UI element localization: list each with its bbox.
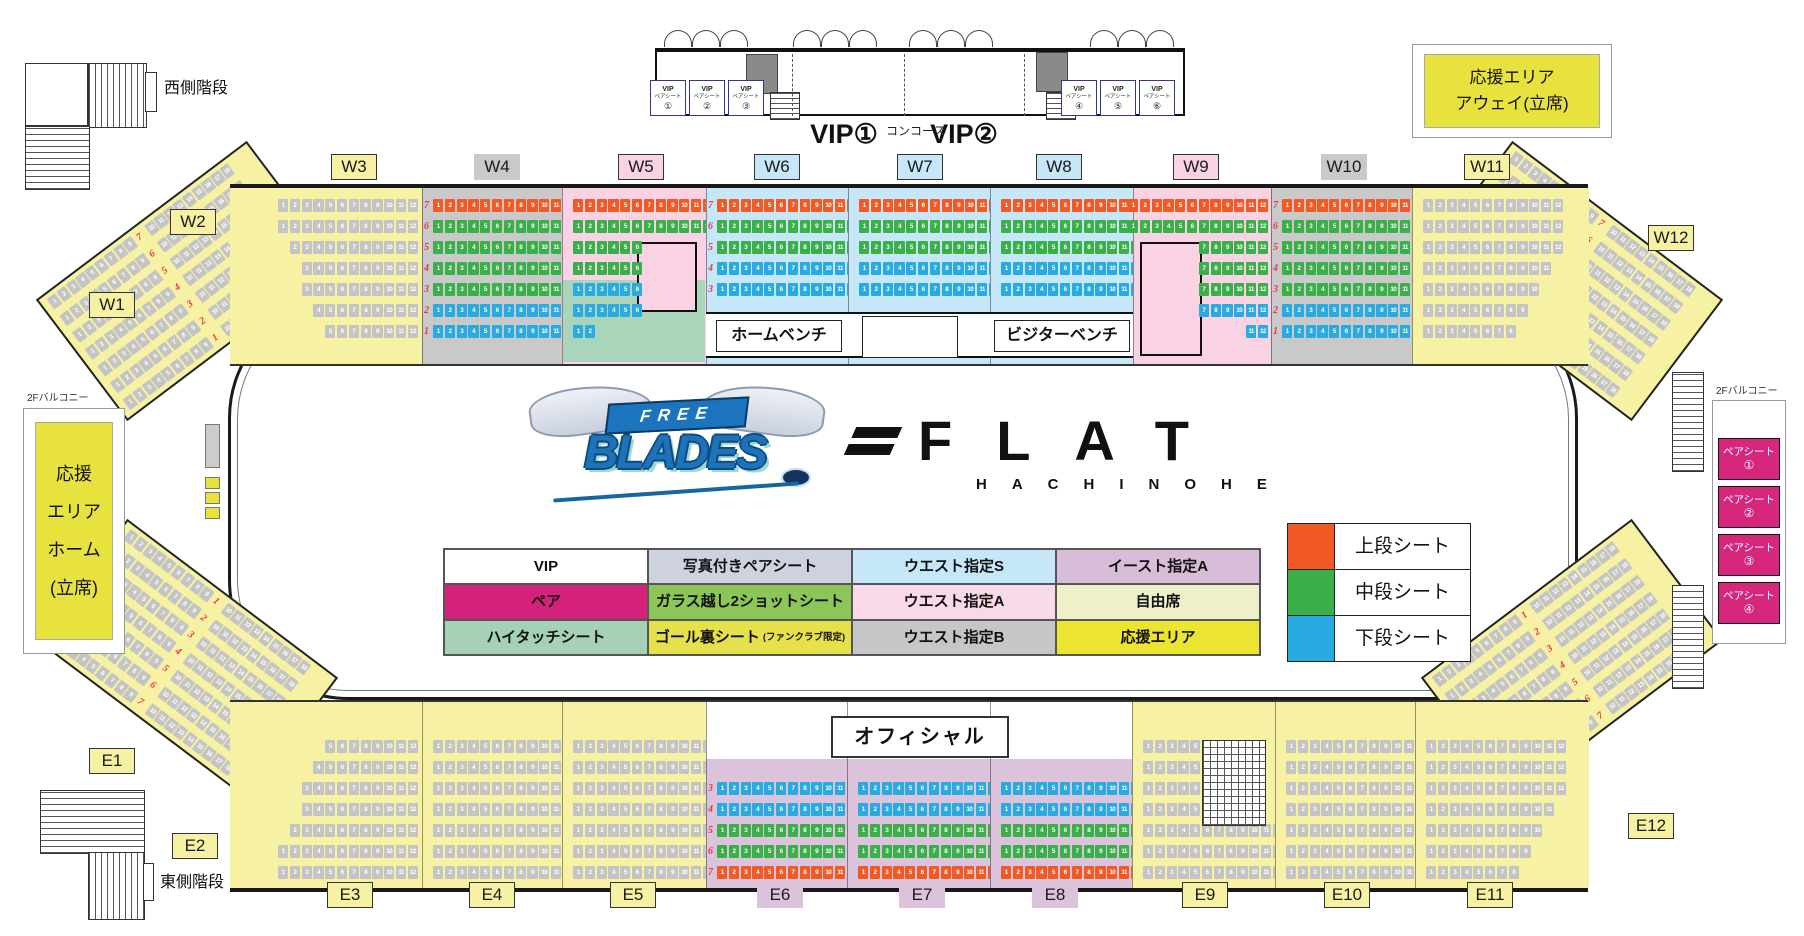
legend-cell-label: ハイタッチシート (486, 629, 605, 646)
seat: 11 (691, 220, 701, 233)
seat: 8 (360, 220, 370, 233)
vip-pair-seat-3: VIPペアシート③ (728, 80, 764, 116)
seat: 8 (516, 283, 526, 296)
seat: 3 (1306, 220, 1316, 233)
seat: 11 (551, 262, 561, 275)
seat: 11 (1246, 283, 1256, 296)
seat: 5 (1333, 782, 1343, 795)
seat: 3 (883, 283, 893, 296)
seat: 9 (1517, 262, 1527, 275)
seat: 9 (1376, 241, 1386, 254)
door-arch-icon (720, 30, 748, 47)
seat: 4 (1317, 325, 1327, 338)
seat: 1 (1001, 283, 1011, 296)
seat: 5 (764, 220, 774, 233)
tier-row-2: 中段シート (1288, 569, 1470, 615)
seat: 6 (1485, 740, 1495, 753)
tier-swatch-1 (1288, 524, 1335, 569)
seat: 4 (1321, 803, 1331, 816)
seat: 8 (1509, 803, 1519, 816)
seat: 8 (1084, 262, 1094, 275)
seat: 4 (468, 241, 478, 254)
seat: 11 (1119, 241, 1129, 254)
seat: 9 (372, 241, 382, 254)
seat: 2 (1438, 803, 1448, 816)
seat-row: 123456789101112 (1426, 740, 1566, 753)
section-label-W4: W4 (474, 154, 520, 180)
seat: 11 (396, 803, 406, 816)
seat-row: 123456789101112 (573, 740, 713, 753)
seat: 10 (1107, 241, 1117, 254)
seat: 2 (445, 824, 455, 837)
seat: 8 (1506, 283, 1516, 296)
seat: 9 (1376, 262, 1386, 275)
seat: 6 (492, 262, 502, 275)
seat: 6 (1485, 824, 1495, 837)
seat: 3 (1025, 845, 1035, 858)
seat: 7 (1357, 866, 1367, 879)
vip-pair-seat-4: VIPペアシート④ (1061, 80, 1097, 116)
seat: 11 (1400, 199, 1410, 212)
seat: 9 (527, 283, 537, 296)
seat: 10 (1107, 866, 1117, 879)
seat: 4 (1461, 740, 1471, 753)
seat: 3 (1167, 782, 1177, 795)
seat: 9 (1095, 782, 1105, 795)
seat: 8 (516, 199, 526, 212)
seat: 4 (1036, 803, 1046, 816)
seat: 9 (372, 866, 382, 879)
seat: 11 (976, 782, 986, 795)
balcony-right-label: 2Fバルコニー (1716, 386, 1777, 398)
seat: 5 (1329, 283, 1339, 296)
seat: 5 (325, 283, 335, 296)
seat-type-legend: VIP写真付きペアシートウエスト指定Sイースト指定Aペアガラス越し2ショットシー… (443, 548, 1261, 656)
seat: 10 (1234, 304, 1244, 317)
seat: 10 (823, 199, 833, 212)
seat-row: 123456789101112 (717, 803, 857, 816)
seat: 5 (1048, 283, 1058, 296)
seat-row: 123456789101112 (858, 845, 998, 858)
seat: 4 (608, 782, 618, 795)
seat: 4 (752, 241, 762, 254)
door-arch-icon (965, 30, 993, 47)
vip-pair-line1: VIP (1112, 86, 1123, 93)
seat: 5 (905, 782, 915, 795)
seat: 9 (667, 824, 677, 837)
section-label-W8: W8 (1036, 154, 1082, 180)
seat: 10 (539, 241, 549, 254)
seat: 3 (741, 824, 751, 837)
seat: 8 (516, 824, 526, 837)
seat: 3 (457, 782, 467, 795)
seat: 10 (679, 199, 689, 212)
seat: 6 (1060, 866, 1070, 879)
seat: 1 (1143, 866, 1153, 879)
seat: 1 (433, 325, 443, 338)
seat: 3 (302, 803, 312, 816)
seat: 11 (1400, 220, 1410, 233)
seat: 4 (1317, 304, 1327, 317)
seat: 2 (1013, 845, 1023, 858)
seat: 9 (372, 782, 382, 795)
seat: 5 (1048, 199, 1058, 212)
seat: 3 (1167, 845, 1177, 858)
seat: 9 (1095, 803, 1105, 816)
seat: 10 (1392, 824, 1402, 837)
seat: 3 (1447, 241, 1457, 254)
section-label-E10: E10 (1324, 882, 1370, 908)
seat: 4 (1461, 782, 1471, 795)
seat: 4 (313, 283, 323, 296)
seat: 2 (585, 199, 595, 212)
seat-row: 123456789101112 (433, 199, 573, 212)
seat: 2 (729, 262, 739, 275)
section-label-E6: E6 (757, 882, 803, 908)
seat: 8 (656, 845, 666, 858)
seat: 6 (776, 866, 786, 879)
seat: 3 (1450, 803, 1460, 816)
seat: 10 (1532, 740, 1542, 753)
seat: 6 (1485, 782, 1495, 795)
seat: 11 (1400, 241, 1410, 254)
seat: 6 (776, 220, 786, 233)
seat: 5 (1329, 241, 1339, 254)
seat: 4 (468, 283, 478, 296)
seat: 5 (1470, 262, 1480, 275)
seat-row: 123456789101112 (278, 866, 418, 879)
seat: 3 (597, 761, 607, 774)
seat: 11 (1119, 283, 1129, 296)
seat: 10 (1388, 241, 1398, 254)
seat: 6 (1345, 845, 1355, 858)
seat: 7 (788, 199, 798, 212)
seat: 4 (1178, 740, 1188, 753)
seat: 11 (835, 283, 845, 296)
seat: 7 (1494, 199, 1504, 212)
seat: 1 (278, 199, 288, 212)
seat: 1 (573, 866, 583, 879)
seat: 10 (1234, 262, 1244, 275)
pair-seat-label: ペアシート (1723, 446, 1775, 458)
seat: 8 (1509, 761, 1519, 774)
seat: 12 (408, 325, 418, 338)
seat: 11 (691, 824, 701, 837)
seat: 3 (1450, 782, 1460, 795)
seat: 4 (313, 304, 323, 317)
seat: 3 (741, 220, 751, 233)
seat: 5 (1473, 803, 1483, 816)
seat: 8 (1365, 304, 1375, 317)
seat: 4 (1458, 283, 1468, 296)
door-arch-icon (1146, 30, 1174, 47)
seat: 4 (608, 740, 618, 753)
vip-pair-line2: ペアシート (1105, 93, 1132, 100)
seat: 11 (396, 241, 406, 254)
section-E5: 1234567891011121234567891011121234567891… (562, 702, 707, 888)
seat: 4 (1317, 283, 1327, 296)
seat: 1 (1282, 262, 1292, 275)
seat: 7 (1353, 325, 1363, 338)
flat-hachinohe-logo: FLAT HACHINOHE (850, 412, 1310, 494)
seat: 2 (1438, 782, 1448, 795)
seat: 4 (1178, 761, 1188, 774)
row-number: 5 (1273, 241, 1278, 254)
seat: 11 (551, 304, 561, 317)
seat: 5 (620, 740, 630, 753)
seat: 9 (952, 803, 962, 816)
row-number: 1 (1273, 325, 1278, 338)
seat: 5 (325, 803, 335, 816)
seat: 2 (1298, 761, 1308, 774)
seat: 4 (313, 199, 323, 212)
seat: 10 (1388, 325, 1398, 338)
seat: 8 (1210, 199, 1220, 212)
seat: 4 (1458, 241, 1468, 254)
seat: 11 (1544, 803, 1554, 816)
seat: 3 (1306, 241, 1316, 254)
seat: 10 (1234, 241, 1244, 254)
seat: 7 (788, 866, 798, 879)
seat: 10 (1249, 845, 1259, 858)
seat: 8 (1506, 262, 1516, 275)
seat: 1 (858, 824, 868, 837)
seat: 9 (1380, 845, 1390, 858)
seat: 7 (644, 199, 654, 212)
seat: 9 (953, 199, 963, 212)
seat: 10 (1234, 283, 1244, 296)
seat: 11 (551, 824, 561, 837)
seat-row: 123456789101112 (717, 262, 857, 275)
seat-row: 123456789101112 (1282, 304, 1422, 317)
seat: 11 (1400, 304, 1410, 317)
seat: 3 (1025, 262, 1035, 275)
seat: 2 (1435, 283, 1445, 296)
seat: 5 (1190, 803, 1200, 816)
tier-label-1: 上段シート (1335, 524, 1470, 569)
legend-cell-label: 応援エリア (1120, 629, 1195, 646)
section-W5: 1234567891011121234567891011121234561234… (562, 188, 707, 364)
swoosh-icon (553, 481, 799, 502)
seat: 6 (1060, 283, 1070, 296)
seat: 6 (632, 845, 642, 858)
seat-row: 1234567891011 (1426, 803, 1554, 816)
seat-row: 3456789101112 (302, 283, 419, 296)
seat: 8 (942, 220, 952, 233)
seat: 4 (1163, 199, 1173, 212)
seat: 11 (977, 262, 987, 275)
seat: 1 (859, 220, 869, 233)
seat: 8 (800, 262, 810, 275)
section-E6: 1234567891011123123456789101112412345678… (706, 702, 848, 888)
seat: 10 (679, 220, 689, 233)
seat: 2 (585, 740, 595, 753)
pair-seat-3: ペアシート③ (1718, 534, 1780, 576)
pair-seat-num: ② (1744, 506, 1755, 520)
seat: 3 (457, 262, 467, 275)
seat: 6 (492, 740, 502, 753)
seat: 9 (372, 283, 382, 296)
tier-label-2: 中段シート (1335, 570, 1470, 615)
seat: 11 (1119, 782, 1129, 795)
seat: 2 (1013, 241, 1023, 254)
seat: 10 (964, 782, 974, 795)
seat: 6 (1482, 325, 1492, 338)
seat: 2 (585, 782, 595, 795)
seat: 5 (620, 845, 630, 858)
legend-cell-r3c3: ウエスト指定B (852, 620, 1056, 655)
seat: 3 (882, 803, 892, 816)
seat: 1 (1001, 866, 1011, 879)
seat-row: 123456789101112 (1282, 283, 1422, 296)
seat: 7 (644, 220, 654, 233)
seat: 7 (504, 325, 514, 338)
seat: 9 (667, 803, 677, 816)
legend-cell-label: ウエスト指定A (904, 593, 1005, 610)
seat: 8 (656, 199, 666, 212)
seat: 9 (1380, 824, 1390, 837)
seat: 3 (1167, 803, 1177, 816)
seat: 5 (764, 199, 774, 212)
seat: 6 (1482, 220, 1492, 233)
seat: 6 (1345, 740, 1355, 753)
seat-row: 123456789101112 (859, 199, 999, 212)
section-label-E7: E7 (899, 882, 945, 908)
seat: 5 (1175, 220, 1185, 233)
pair-seat-label: ペアシート (1723, 590, 1775, 602)
seat: 5 (1329, 325, 1339, 338)
seat: 6 (1345, 866, 1355, 879)
seat: 2 (1294, 283, 1304, 296)
seat: 4 (608, 845, 618, 858)
seat: 4 (468, 845, 478, 858)
seat: 11 (551, 845, 561, 858)
seat: 4 (1458, 220, 1468, 233)
seat: 2 (1155, 824, 1165, 837)
vip-pair-line1: VIP (1073, 86, 1084, 93)
vip-pair-line2: ペアシート (733, 93, 760, 100)
seat: 10 (384, 761, 394, 774)
seat: 2 (1013, 283, 1023, 296)
seat: 8 (800, 803, 810, 816)
seat: 3 (457, 740, 467, 753)
seat: 2 (1013, 824, 1023, 837)
seat: 9 (1380, 782, 1390, 795)
penalty-box (862, 316, 958, 358)
seat: 9 (527, 803, 537, 816)
row-number: 6 (708, 220, 713, 233)
seat: 7 (1494, 304, 1504, 317)
seat: 4 (608, 199, 618, 212)
seat: 1 (1286, 824, 1296, 837)
seat: 3 (457, 325, 467, 338)
seat: 4 (894, 241, 904, 254)
seat: 2 (1155, 845, 1165, 858)
seat: 3 (1306, 262, 1316, 275)
seat: 3 (597, 283, 607, 296)
seat: 7 (929, 803, 939, 816)
seat: 5 (1470, 241, 1480, 254)
seat: 9 (1520, 782, 1530, 795)
seat: 7 (349, 241, 359, 254)
seat: 2 (445, 325, 455, 338)
seat: 10 (539, 740, 549, 753)
seat: 11 (1404, 782, 1414, 795)
seat: 5 (1473, 761, 1483, 774)
seat: 2 (871, 262, 881, 275)
seat: 6 (1341, 199, 1351, 212)
seat: 4 (608, 761, 618, 774)
seat: 9 (527, 782, 537, 795)
seat: 11 (1261, 845, 1271, 858)
seat: 8 (941, 803, 951, 816)
row-number: 2 (424, 304, 429, 317)
seat: 7 (929, 866, 939, 879)
vip-pair-num: ⑤ (1114, 101, 1122, 111)
seat: 8 (941, 824, 951, 837)
seat: 11 (1400, 283, 1410, 296)
seat: 2 (1155, 740, 1165, 753)
seat: 1 (278, 866, 288, 879)
seat: 6 (917, 803, 927, 816)
section-label-W3: W3 (331, 154, 377, 180)
seat: 11 (976, 803, 986, 816)
door-arch-icon (1118, 30, 1146, 47)
seat: 11 (1261, 866, 1271, 879)
seat-row: 12 (573, 325, 595, 338)
seat: 11 (396, 283, 406, 296)
seat: 11 (691, 761, 701, 774)
seat: 11 (551, 325, 561, 338)
seat: 2 (1435, 304, 1445, 317)
seat: 7 (1072, 283, 1082, 296)
seat: 5 (1473, 782, 1483, 795)
divider-line (1024, 54, 1025, 116)
seat: 6 (918, 262, 928, 275)
seat: 7 (930, 262, 940, 275)
seat: 7 (1357, 845, 1367, 858)
east-stairs-tab (143, 863, 154, 901)
seat: 3 (883, 220, 893, 233)
seat: 10 (1107, 782, 1117, 795)
legend-cell-note: (ファンクラブ限定) (763, 632, 845, 643)
seat: 1 (278, 220, 288, 233)
seat-row: 123456789101112 (1282, 325, 1422, 338)
seat: 10 (1388, 199, 1398, 212)
seat: 1 (1423, 325, 1433, 338)
seat: 3 (457, 220, 467, 233)
seat: 10 (1234, 199, 1244, 212)
section-W3: 1234567891011121234567891011122345678910… (230, 188, 422, 364)
seat: 1 (573, 782, 583, 795)
hachinohe-wordmark: HACHINOHE (976, 476, 1310, 494)
seat: 6 (492, 866, 502, 879)
seat: 4 (1178, 824, 1188, 837)
seat: 5 (1333, 740, 1343, 753)
pair-room (1140, 242, 1202, 356)
seat: 9 (1222, 199, 1232, 212)
seat: 7 (1497, 824, 1507, 837)
seat: 9 (1520, 803, 1530, 816)
seat: 4 (1036, 283, 1046, 296)
seat: 8 (360, 824, 370, 837)
seat: 7 (788, 241, 798, 254)
seat: 10 (384, 325, 394, 338)
seat: 5 (906, 262, 916, 275)
seat: 7 (1214, 866, 1224, 879)
seat: 3 (302, 199, 312, 212)
seat: 3 (1025, 824, 1035, 837)
